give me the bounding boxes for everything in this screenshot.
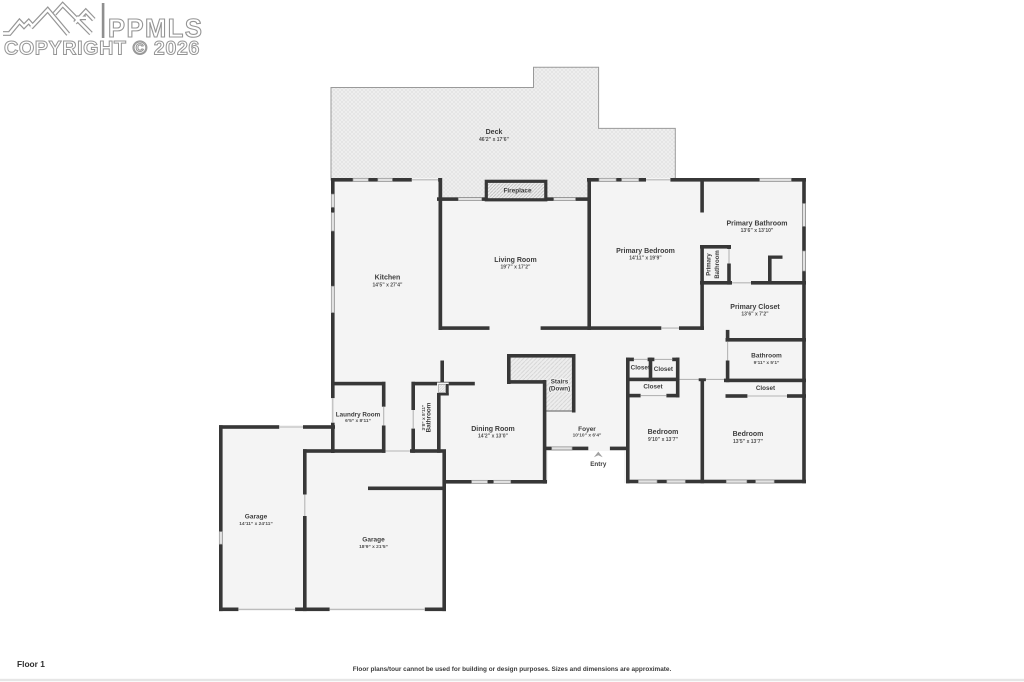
svg-text:Primary Bathroom: Primary Bathroom [726,220,787,227]
svg-text:Foyer: Foyer [578,426,596,433]
svg-text:Closet: Closet [654,366,674,373]
svg-text:Closet: Closet [643,384,663,391]
svg-text:Laundry Room: Laundry Room [336,411,381,418]
svg-text:Bathroom: Bathroom [751,353,782,360]
svg-text:Closet: Closet [756,385,776,392]
svg-text:Kitchen: Kitchen [375,275,401,282]
svg-text:14’11” x 19’9”: 14’11” x 19’9” [629,256,662,262]
svg-text:Primary: Primary [707,253,713,276]
svg-text:Primary Bedroom: Primary Bedroom [616,248,675,255]
svg-text:46’2” x 17’6”: 46’2” x 17’6” [479,137,510,143]
svg-text:COPYRIGHT © 2026: COPYRIGHT © 2026 [4,38,200,60]
svg-text:9’11” x 5’1”: 9’11” x 5’1” [754,360,780,366]
svg-text:Bedroom: Bedroom [733,431,764,438]
svg-text:Garage: Garage [362,537,385,544]
svg-text:Closet: Closet [631,364,651,371]
svg-text:Bathroom: Bathroom [715,250,721,278]
svg-text:Dining Room: Dining Room [471,426,515,433]
svg-text:Garage: Garage [245,513,268,520]
svg-text:6’5” x 8’11”: 6’5” x 8’11” [345,418,371,424]
svg-text:Primary Closet: Primary Closet [730,304,780,311]
svg-text:13’6” x 13’10”: 13’6” x 13’10” [741,228,774,234]
svg-text:Deck: Deck [486,129,503,136]
svg-text:Fireplace: Fireplace [503,187,532,194]
svg-text:14’5” x 27’4”: 14’5” x 27’4” [372,282,403,288]
svg-text:Floor plans/tour cannot be use: Floor plans/tour cannot be used for buil… [353,666,672,673]
svg-text:14’2” x 13’0”: 14’2” x 13’0” [478,433,509,439]
svg-text:Stairs: Stairs [551,378,569,385]
svg-text:Floor 1: Floor 1 [17,659,45,669]
svg-text:14’11” x 24’11”: 14’11” x 24’11” [239,521,273,527]
svg-text:18’9” x 21’5”: 18’9” x 21’5” [359,544,388,550]
svg-text:Living Room: Living Room [494,257,536,264]
svg-text:19’7” x 17’2”: 19’7” x 17’2” [500,265,531,271]
svg-text:(Down): (Down) [549,386,570,393]
svg-text:13’6” x 7’2”: 13’6” x 7’2” [741,312,769,318]
svg-text:9’10” x 13’7”: 9’10” x 13’7” [648,437,679,443]
svg-text:13’5” x 13’7”: 13’5” x 13’7” [733,439,764,445]
svg-text:Bedroom: Bedroom [648,429,679,436]
svg-text:10’10” x 6’4”: 10’10” x 6’4” [573,433,602,439]
svg-text:Entry: Entry [590,461,607,468]
svg-text:3’8” x 8’11”: 3’8” x 8’11” [421,404,427,430]
